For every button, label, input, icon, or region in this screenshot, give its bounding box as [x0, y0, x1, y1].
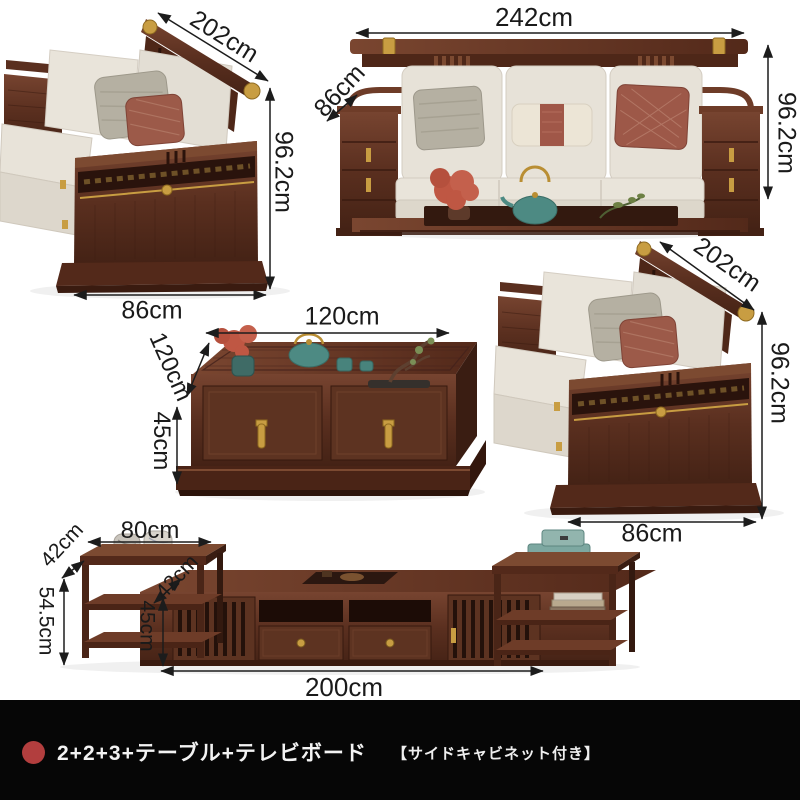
dim-label-loveseat-left-width: 86cm: [121, 299, 182, 324]
dim-label-loveseat-right-width: 86cm: [621, 522, 682, 547]
dim-label-table-height: 45cm: [149, 412, 173, 471]
bullet-dot: [22, 741, 45, 764]
dim-label-sofa3-height: 96.2cm: [774, 92, 799, 174]
dim-label-tv-board-width: 200cm: [305, 674, 383, 700]
note-label: 【サイドキャビネット付き】: [392, 743, 600, 764]
arrow-tv-side-depth: [62, 561, 84, 578]
dim-label-table-width: 120cm: [304, 305, 379, 330]
dim-label-tv-side-height: 54.5cm: [36, 587, 57, 656]
dim-label-sofa3-width: 242cm: [495, 4, 573, 30]
set-name-label: 2+2+3+テーブル+テレビボード: [57, 737, 367, 767]
dim-label-loveseat-right-height: 96.2cm: [767, 342, 792, 424]
dim-label-tv-side-width: 80cm: [121, 519, 180, 543]
dim-label-loveseat-left-height: 96.2cm: [271, 131, 296, 213]
furniture-illustrations: [0, 0, 800, 700]
footer-bar: 2+2+3+テーブル+テレビボード 【サイドキャビネット付き】: [0, 700, 800, 800]
product-dimension-sheet: 202cm 96.2cm 86cm 242cm 86cm 96.2cm 120c…: [0, 0, 800, 800]
three-seat-sofa-illustration: [336, 38, 764, 240]
tea-table-illustration: [175, 325, 486, 501]
dim-label-tv-board-height: 45cm: [137, 600, 158, 651]
